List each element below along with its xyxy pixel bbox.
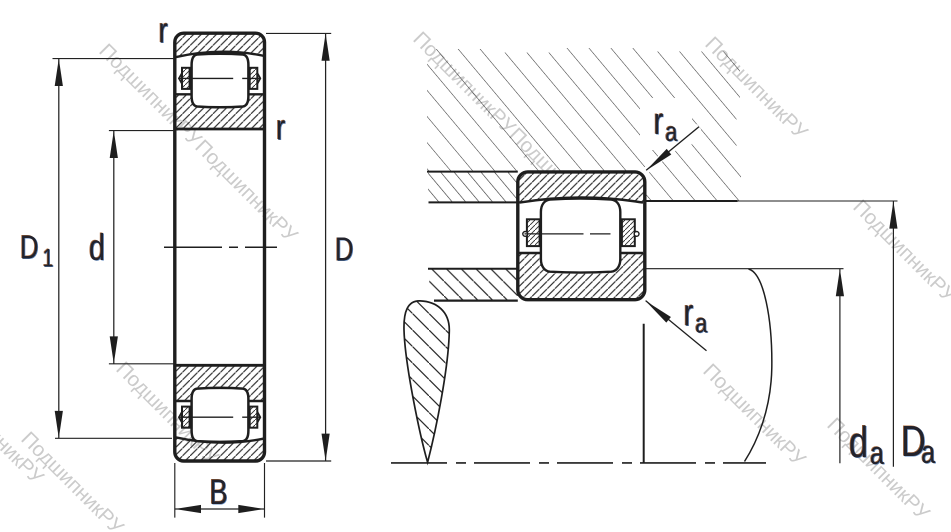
svg-text:a: a [665, 116, 677, 147]
svg-text:a: a [695, 308, 707, 339]
svg-text:r: r [654, 101, 664, 143]
svg-text:D: D [20, 229, 39, 266]
svg-text:d: d [89, 228, 105, 269]
svg-text:ПодшипникРУ: ПодшипникРУ [698, 359, 810, 471]
svg-text:ПодшипникРУ: ПодшипникРУ [0, 377, 49, 489]
svg-text:d: d [849, 418, 868, 467]
svg-text:D: D [335, 232, 354, 269]
svg-text:ПодшипникРУ: ПодшипникРУ [190, 135, 302, 247]
svg-text:r: r [684, 292, 694, 334]
svg-text:B: B [210, 473, 228, 512]
svg-text:r: r [159, 10, 169, 50]
svg-text:ПодшипникРУ: ПодшипникРУ [848, 195, 951, 307]
svg-text:r: r [276, 107, 286, 147]
svg-text:a: a [870, 436, 884, 472]
svg-text:1: 1 [43, 244, 54, 272]
svg-text:a: a [921, 435, 935, 471]
